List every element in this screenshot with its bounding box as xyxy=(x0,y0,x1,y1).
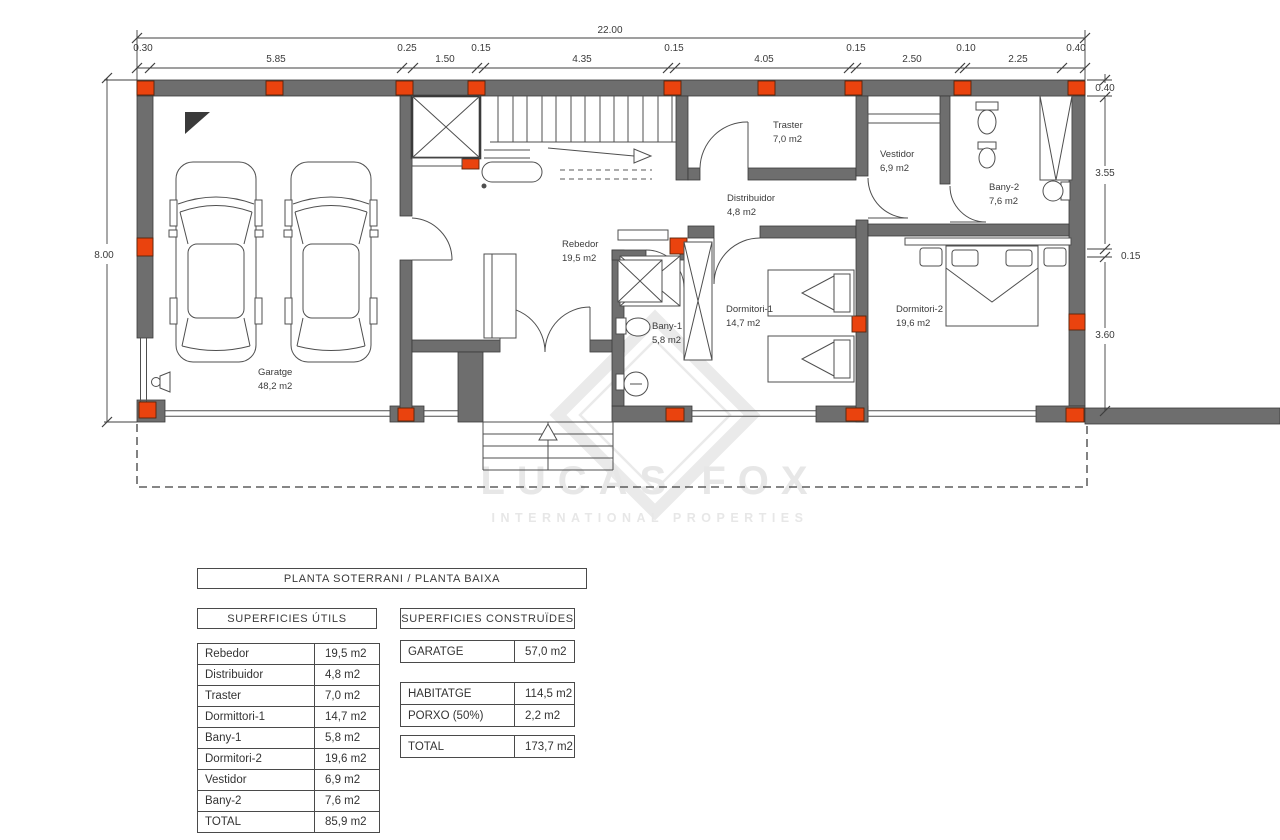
room-label-dormitori2: Dormitori-2 xyxy=(896,304,943,315)
table-total-row: TOTAL 85,9 m2 xyxy=(198,811,379,832)
nightstand-icon xyxy=(1044,248,1066,266)
header-label: SUPERFICIES ÚTILS xyxy=(227,613,346,625)
nightstand-icon xyxy=(920,248,942,266)
pillar xyxy=(1069,314,1085,330)
dim-label: 3.55 xyxy=(1095,168,1115,179)
drawing-canvas: LUCAS FOX INTERNATIONAL PROPERTIES xyxy=(0,0,1280,840)
dim-label: 0.40 xyxy=(1095,83,1115,94)
car-icon xyxy=(284,162,378,362)
total-label: TOTAL xyxy=(198,812,314,832)
superficies-utils-header: SUPERFICIES ÚTILS xyxy=(197,608,377,629)
superficies-construides-header: SUPERFICIES CONSTRUÏDES xyxy=(400,608,575,629)
pillar xyxy=(846,408,864,421)
pillar xyxy=(266,81,283,95)
dim-label: 0.15 xyxy=(846,43,866,54)
dim-label: 0.10 xyxy=(956,43,976,54)
dim-label: 0.30 xyxy=(133,43,153,54)
total-label: TOTAL xyxy=(401,736,514,757)
room-label: Bany-1 xyxy=(198,728,314,748)
table-row: Rebedor 19,5 m2 xyxy=(198,644,379,664)
closet-column xyxy=(684,242,712,360)
staircase xyxy=(482,96,677,189)
dimension-left: 8.00 xyxy=(94,73,137,427)
table-row: Traster 7,0 m2 xyxy=(198,685,379,706)
table-row: Bany-1 5,8 m2 xyxy=(198,727,379,748)
room-area-garatge: 48,2 m2 xyxy=(258,381,292,392)
pillar xyxy=(468,81,485,95)
floor-plan-svg: LUCAS FOX INTERNATIONAL PROPERTIES xyxy=(0,0,1280,560)
dim-label: 0.25 xyxy=(397,43,417,54)
dim-left-height: 8.00 xyxy=(94,250,114,261)
room-label-bany2: Bany-2 xyxy=(989,182,1019,193)
plan-title-box: PLANTA SOTERRANI / PLANTA BAIXA xyxy=(197,568,587,589)
pillar xyxy=(1068,81,1085,95)
pillar xyxy=(666,408,684,421)
garage-cars xyxy=(152,112,379,392)
dim-label: 0.40 xyxy=(1066,43,1086,54)
header-label: SUPERFICIES CONSTRUÏDES xyxy=(401,613,574,625)
room-label-bany1: Bany-1 xyxy=(652,321,682,332)
dim-label: 2.25 xyxy=(1008,54,1028,65)
row-value: 57,0 m2 xyxy=(514,641,574,662)
table-row: HABITATGE 114,5 m2 xyxy=(401,683,574,704)
room-area: 7,0 m2 xyxy=(314,686,379,706)
room-area: 7,6 m2 xyxy=(314,791,379,811)
dim-label: 0.15 xyxy=(1121,251,1141,262)
dimension-right: 0.40 3.55 0.15 3.60 xyxy=(1087,74,1141,416)
pillar xyxy=(758,81,775,95)
dim-total-width: 22.00 xyxy=(597,25,622,36)
room-label-traster: Traster xyxy=(773,120,803,131)
dormitori1-beds xyxy=(768,270,854,382)
table-row: GARATGE 57,0 m2 xyxy=(401,641,574,662)
pillar xyxy=(845,81,862,95)
room-label: Distribuidor xyxy=(198,665,314,685)
dim-label: 0.15 xyxy=(471,43,491,54)
habitatge-table: HABITATGE 114,5 m2 PORXO (50%) 2,2 m2 xyxy=(400,682,575,727)
table-row: PORXO (50%) 2,2 m2 xyxy=(401,704,574,726)
pillar xyxy=(137,238,153,256)
room-area-dormitori1: 14,7 m2 xyxy=(726,318,760,329)
room-area: 4,8 m2 xyxy=(314,665,379,685)
row-label: HABITATGE xyxy=(401,683,514,704)
room-area-traster: 7,0 m2 xyxy=(773,134,802,145)
room-area: 14,7 m2 xyxy=(314,707,379,727)
table-row: Dormittori-1 14,7 m2 xyxy=(198,706,379,727)
plan-title: PLANTA SOTERRANI / PLANTA BAIXA xyxy=(284,573,500,585)
dim-label: 0.15 xyxy=(664,43,684,54)
room-label-dormitori1: Dormitori-1 xyxy=(726,304,773,315)
room-area-bany2: 7,6 m2 xyxy=(989,196,1018,207)
superficies-utils-table: Rebedor 19,5 m2 Distribuidor 4,8 m2 Tras… xyxy=(197,643,380,833)
room-label: Dormitori-2 xyxy=(198,749,314,769)
shower-icon xyxy=(1040,96,1072,180)
room-area-rebedor: 19,5 m2 xyxy=(562,253,596,264)
room-area: 5,8 m2 xyxy=(314,728,379,748)
table-row: Vestidor 6,9 m2 xyxy=(198,769,379,790)
room-area: 19,5 m2 xyxy=(314,644,379,664)
dimension-top: 22.00 0.30 5.85 0.25 1.50 0.15 4.35 0.15… xyxy=(132,25,1090,80)
pillar xyxy=(852,316,866,332)
pillar xyxy=(664,81,681,95)
table-total-row: TOTAL 173,7 m2 xyxy=(401,736,574,757)
floor-plan-document: { "colors": { "wall": "#6e6e6e", "pillar… xyxy=(0,0,1280,840)
room-area-vestidor: 6,9 m2 xyxy=(880,163,909,174)
dim-label: 1.50 xyxy=(435,54,455,65)
pillar xyxy=(137,81,154,95)
room-label: Traster xyxy=(198,686,314,706)
pillar xyxy=(398,408,414,421)
elevator-icon xyxy=(412,96,480,166)
dim-label: 2.50 xyxy=(902,54,922,65)
row-value: 2,2 m2 xyxy=(514,705,574,726)
pillar xyxy=(954,81,971,95)
room-label-distribuidor: Distribuidor xyxy=(727,193,775,204)
room-label: Bany-2 xyxy=(198,791,314,811)
table-row: Distribuidor 4,8 m2 xyxy=(198,664,379,685)
room-area-distribuidor: 4,8 m2 xyxy=(727,207,756,218)
table-row: Bany-2 7,6 m2 xyxy=(198,790,379,811)
total-value: 173,7 m2 xyxy=(514,736,574,757)
pillar xyxy=(1066,408,1084,422)
row-label: GARATGE xyxy=(401,641,514,662)
room-area: 19,6 m2 xyxy=(314,749,379,769)
room-label: Vestidor xyxy=(198,770,314,790)
up-arrow-icon xyxy=(539,424,557,440)
corner-hatch xyxy=(185,112,210,134)
room-label-garatge: Garatge xyxy=(258,367,292,378)
constr-total-table: TOTAL 173,7 m2 xyxy=(400,735,575,758)
garage-door-motor-icon xyxy=(152,378,161,387)
room-label-vestidor: Vestidor xyxy=(880,149,914,160)
row-value: 114,5 m2 xyxy=(514,683,574,704)
room-area: 6,9 m2 xyxy=(314,770,379,790)
dim-label: 3.60 xyxy=(1095,330,1115,341)
dim-label: 4.05 xyxy=(754,54,774,65)
room-area-dormitori2: 19,6 m2 xyxy=(896,318,930,329)
total-value: 85,9 m2 xyxy=(314,812,379,832)
dim-label: 5.85 xyxy=(266,54,286,65)
toilet-icon xyxy=(976,102,998,110)
room-area-bany1: 5,8 m2 xyxy=(652,335,681,346)
dim-label: 4.35 xyxy=(572,54,592,65)
watermark-line2: INTERNATIONAL PROPERTIES xyxy=(492,511,809,525)
row-label: PORXO (50%) xyxy=(401,705,514,726)
room-label: Rebedor xyxy=(198,644,314,664)
room-label: Dormittori-1 xyxy=(198,707,314,727)
vestidor-fixtures xyxy=(868,114,940,123)
garatge-table: GARATGE 57,0 m2 xyxy=(400,640,575,663)
watermark-line1: LUCAS FOX xyxy=(480,459,819,503)
car-icon xyxy=(169,162,263,362)
pillar xyxy=(396,81,413,95)
pillar xyxy=(139,402,156,418)
room-label-rebedor: Rebedor xyxy=(562,239,598,250)
table-row: Dormitori-2 19,6 m2 xyxy=(198,748,379,769)
